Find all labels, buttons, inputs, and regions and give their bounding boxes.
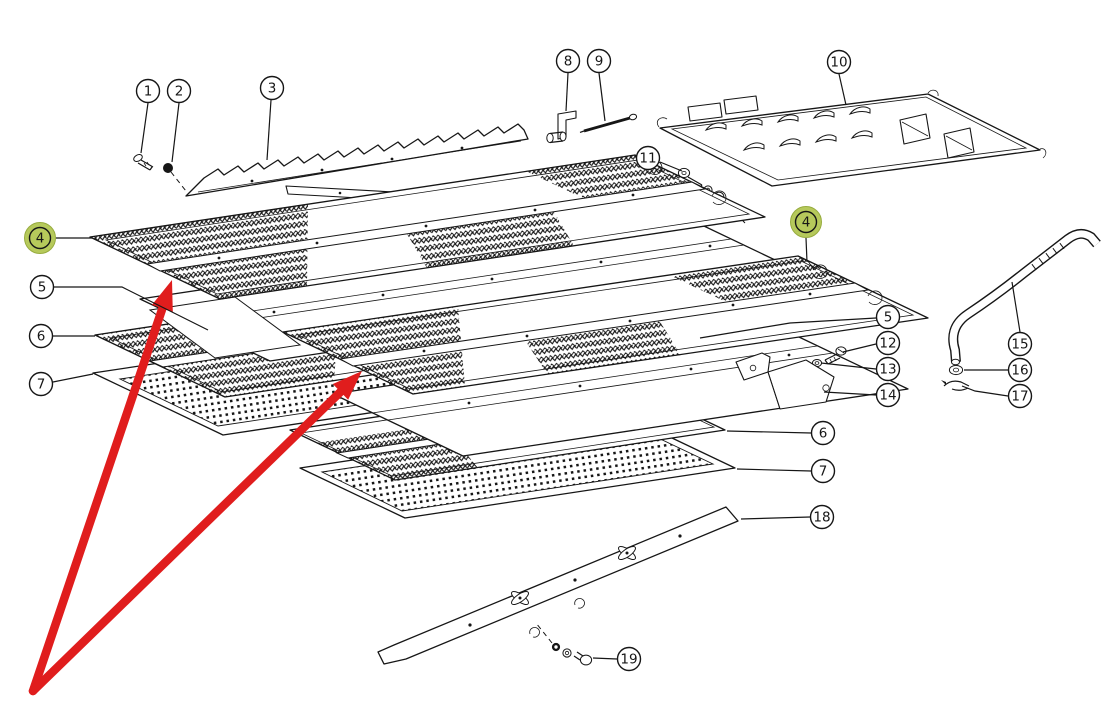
callout-4-right[interactable]: 4: [791, 207, 822, 263]
callout-17[interactable]: 17: [962, 385, 1032, 408]
slide-rail-part-18: [378, 507, 738, 664]
arrow-left: [33, 280, 173, 691]
callout-5-left-number: 5: [38, 280, 47, 296]
callout-3-leader: [267, 100, 271, 160]
callout-2[interactable]: 2: [168, 80, 191, 163]
callout-6-left-number: 6: [37, 329, 46, 345]
callout-15-leader: [1012, 282, 1020, 332]
callout-4-left[interactable]: 4: [25, 223, 93, 254]
screw-part-1: [132, 153, 153, 170]
callout-10[interactable]: 10: [828, 51, 851, 106]
callout-6-right-leader: [727, 431, 811, 433]
callout-15-number: 15: [1011, 337, 1028, 353]
callout-4-right-leader: [806, 238, 807, 262]
callout-17-leader: [962, 386, 1008, 396]
callout-9[interactable]: 9: [588, 50, 611, 122]
callout-1[interactable]: 1: [137, 80, 160, 154]
callout-18-leader: [741, 517, 810, 519]
callout-1-leader: [141, 103, 148, 153]
callout-5-right-number: 5: [884, 310, 893, 326]
callout-10-number: 10: [830, 55, 847, 71]
parts-diagram-page: 123891011456745121314151617671819: [0, 0, 1118, 712]
callout-15[interactable]: 15: [1009, 282, 1032, 356]
callout-4-right-number: 4: [802, 215, 811, 231]
callout-7-right-number: 7: [819, 464, 828, 480]
callout-8-leader: [566, 73, 568, 111]
callout-3-number: 3: [268, 81, 277, 97]
callout-2-leader: [172, 103, 179, 162]
callout-6-left[interactable]: 6: [30, 325, 96, 348]
callout-11-number: 11: [639, 151, 656, 167]
callout-6-right[interactable]: 6: [727, 422, 835, 445]
callout-2-number: 2: [175, 84, 184, 100]
callout-12[interactable]: 12: [843, 332, 900, 355]
callout-16-number: 16: [1011, 363, 1028, 379]
callout-19-number: 19: [620, 652, 637, 668]
cotter-clip-part-17: [941, 380, 969, 390]
callout-9-leader: [599, 73, 605, 121]
callout-7-left[interactable]: 7: [30, 373, 94, 396]
callout-1-number: 1: [144, 84, 153, 100]
callout-12-leader: [843, 344, 876, 352]
callout-10-leader: [839, 74, 846, 105]
callout-14-number: 14: [879, 388, 896, 404]
callout-19-leader: [593, 658, 617, 659]
callout-7-left-leader: [53, 374, 93, 382]
callout-8[interactable]: 8: [557, 50, 580, 112]
callout-19[interactable]: 19: [593, 648, 641, 671]
callout-7-left-number: 7: [37, 377, 46, 393]
nut-part-2: [163, 163, 172, 172]
arrow-right-shaft: [33, 388, 345, 691]
callout-3[interactable]: 3: [261, 77, 284, 161]
exploded-parts-diagram: 123891011456745121314151617671819: [0, 0, 1118, 712]
bolt-part-19: [536, 623, 592, 665]
callout-13-number: 13: [879, 362, 896, 378]
callout-7-right-leader: [737, 469, 811, 471]
retainer-bracket-part-8: [547, 111, 576, 143]
callout-18[interactable]: 18: [741, 506, 834, 529]
callout-7-right[interactable]: 7: [737, 460, 835, 483]
pin-part-9: [580, 113, 637, 132]
callout-8-number: 8: [564, 54, 573, 70]
alignment-dash-part-2: [171, 172, 186, 191]
callout-9-number: 9: [595, 54, 604, 70]
callout-17-number: 17: [1011, 389, 1028, 405]
washer-part-16: [949, 365, 962, 374]
callout-12-number: 12: [879, 336, 896, 352]
deflector-plate-part-10: [657, 90, 1046, 186]
callout-4-left-number: 4: [36, 231, 45, 247]
callout-6-right-number: 6: [819, 426, 828, 442]
callout-18-number: 18: [813, 510, 830, 526]
callout-16[interactable]: 16: [964, 359, 1032, 382]
